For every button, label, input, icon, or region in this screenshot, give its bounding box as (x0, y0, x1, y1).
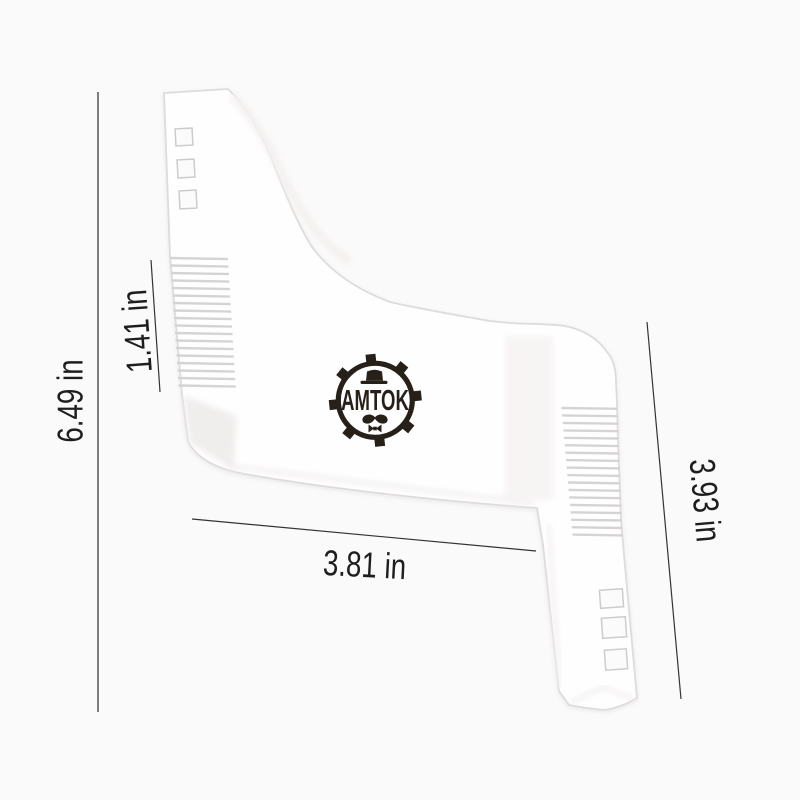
svg-text:3.93 in: 3.93 in (682, 457, 730, 543)
svg-text:6.49 in: 6.49 in (50, 359, 91, 442)
svg-text:1.41 in: 1.41 in (113, 288, 160, 374)
svg-text:AMTOK: AMTOK (341, 385, 409, 417)
svg-text:3.81 in: 3.81 in (322, 542, 407, 587)
